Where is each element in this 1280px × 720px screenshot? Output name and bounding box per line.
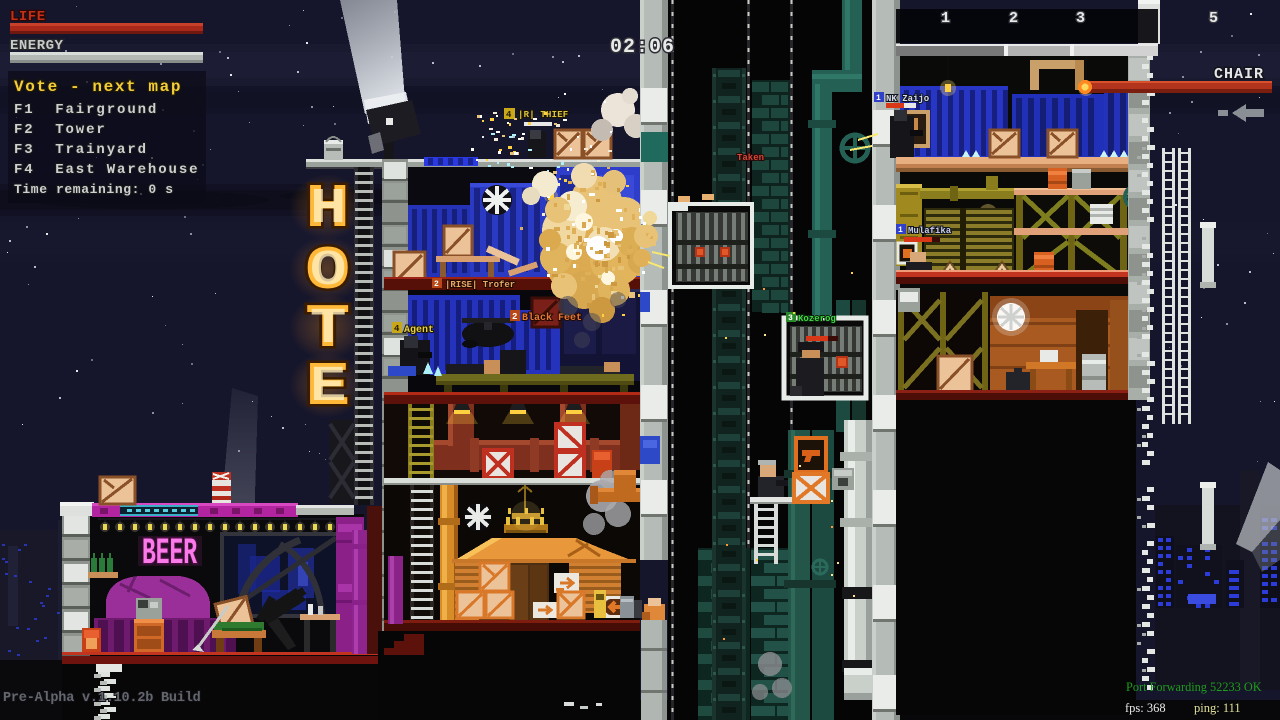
svg-text:ping: 111: ping: 111 [1194, 701, 1241, 715]
svg-text:fps: 368: fps: 368 [1125, 701, 1166, 715]
svg-text:02:06: 02:06 [610, 36, 675, 59]
svg-text:NK Zaijo: NK Zaijo [886, 94, 929, 104]
svg-text:2: 2 [434, 280, 439, 289]
svg-text:3: 3 [788, 314, 793, 323]
svg-text:5: 5 [1209, 10, 1218, 27]
svg-text:|RISE| Trofer: |RISE| Trofer [445, 280, 515, 290]
svg-text:Mulafika: Mulafika [908, 226, 952, 236]
svg-text:3: 3 [1076, 10, 1085, 27]
svg-text:LIFE: LIFE [10, 9, 46, 25]
svg-text:1: 1 [941, 10, 950, 27]
svg-text:2: 2 [512, 312, 517, 322]
svg-text:Port Forwarding 52233 OK: Port Forwarding 52233 OK [1126, 680, 1262, 694]
svg-text:Pre-Alpha v.1.10.2b Build: Pre-Alpha v.1.10.2b Build [3, 691, 201, 706]
svg-text:1: 1 [898, 226, 903, 235]
svg-text:E: E [310, 359, 347, 415]
svg-text:Agent: Agent [404, 325, 434, 336]
svg-text:F1 Fairground: F1 Fairground [14, 102, 158, 118]
svg-text:ENERGY: ENERGY [10, 38, 64, 54]
svg-text:Vote - next map: Vote - next map [14, 78, 182, 96]
svg-text:Kozerog: Kozerog [798, 314, 836, 324]
svg-text:Taken: Taken [737, 153, 764, 163]
svg-text:4: 4 [506, 110, 512, 120]
svg-text:BEER: BEER [142, 533, 197, 575]
svg-text:O: O [310, 243, 347, 299]
svg-text:F2 Tower: F2 Tower [14, 122, 107, 138]
svg-text:T: T [310, 301, 347, 357]
svg-text:4: 4 [394, 324, 400, 334]
svg-text:H: H [310, 181, 347, 237]
svg-text:1: 1 [876, 94, 881, 103]
svg-text:2: 2 [1009, 10, 1018, 27]
svg-text:F4 East Warehouse: F4 East Warehouse [14, 162, 199, 178]
svg-text:Time remaining: 0 s: Time remaining: 0 s [14, 182, 174, 197]
svg-text:|R| THIEF: |R| THIEF [518, 110, 568, 120]
svg-text:F3 Trainyard: F3 Trainyard [14, 142, 148, 158]
svg-text:CHAIR: CHAIR [1214, 66, 1264, 83]
